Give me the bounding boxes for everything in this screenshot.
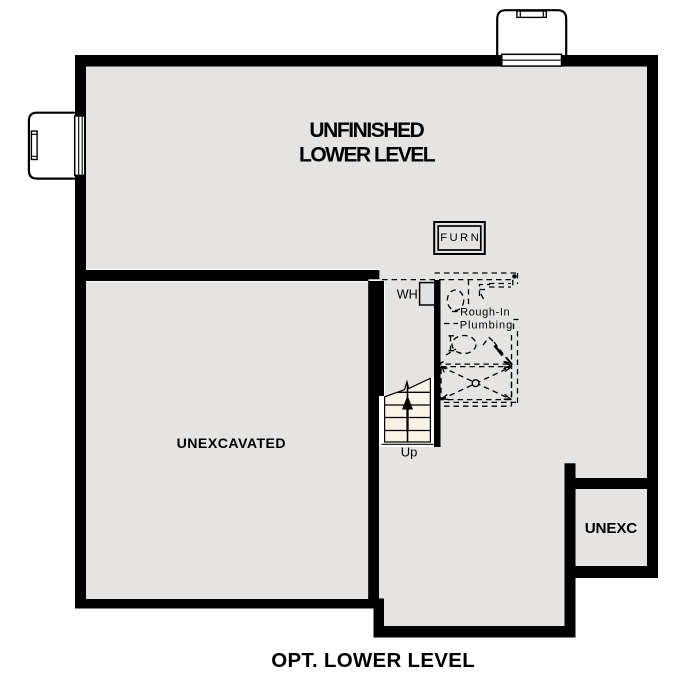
svg-text:UNFINISHED: UNFINISHED [309,119,425,142]
svg-text:OPT. LOWER LEVEL: OPT. LOWER LEVEL [271,649,475,672]
svg-text:Plumbing: Plumbing [460,320,513,332]
svg-text:FURN: FURN [440,232,479,244]
svg-text:UNEXCAVATED: UNEXCAVATED [177,435,286,451]
svg-text:Rough-In: Rough-In [460,306,510,318]
svg-text:UNEXC: UNEXC [585,520,638,537]
svg-text:WH: WH [397,287,418,301]
svg-text:LOWER LEVEL: LOWER LEVEL [299,143,436,166]
svg-text:Up: Up [401,445,418,460]
